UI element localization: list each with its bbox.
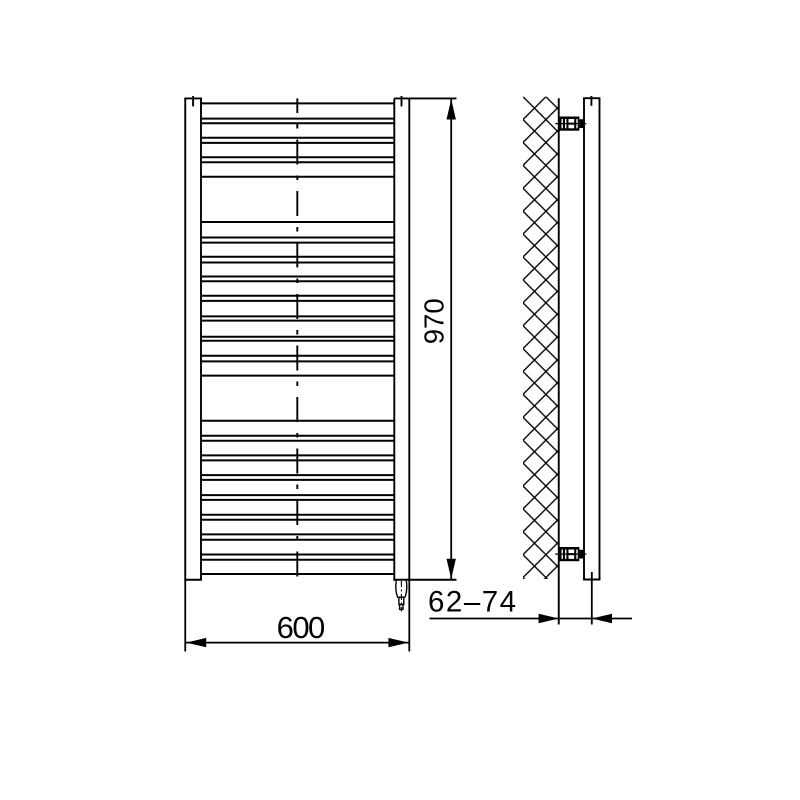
svg-text:970: 970	[419, 298, 450, 344]
svg-text:62–74: 62–74	[428, 586, 518, 619]
svg-text:600: 600	[277, 610, 325, 645]
